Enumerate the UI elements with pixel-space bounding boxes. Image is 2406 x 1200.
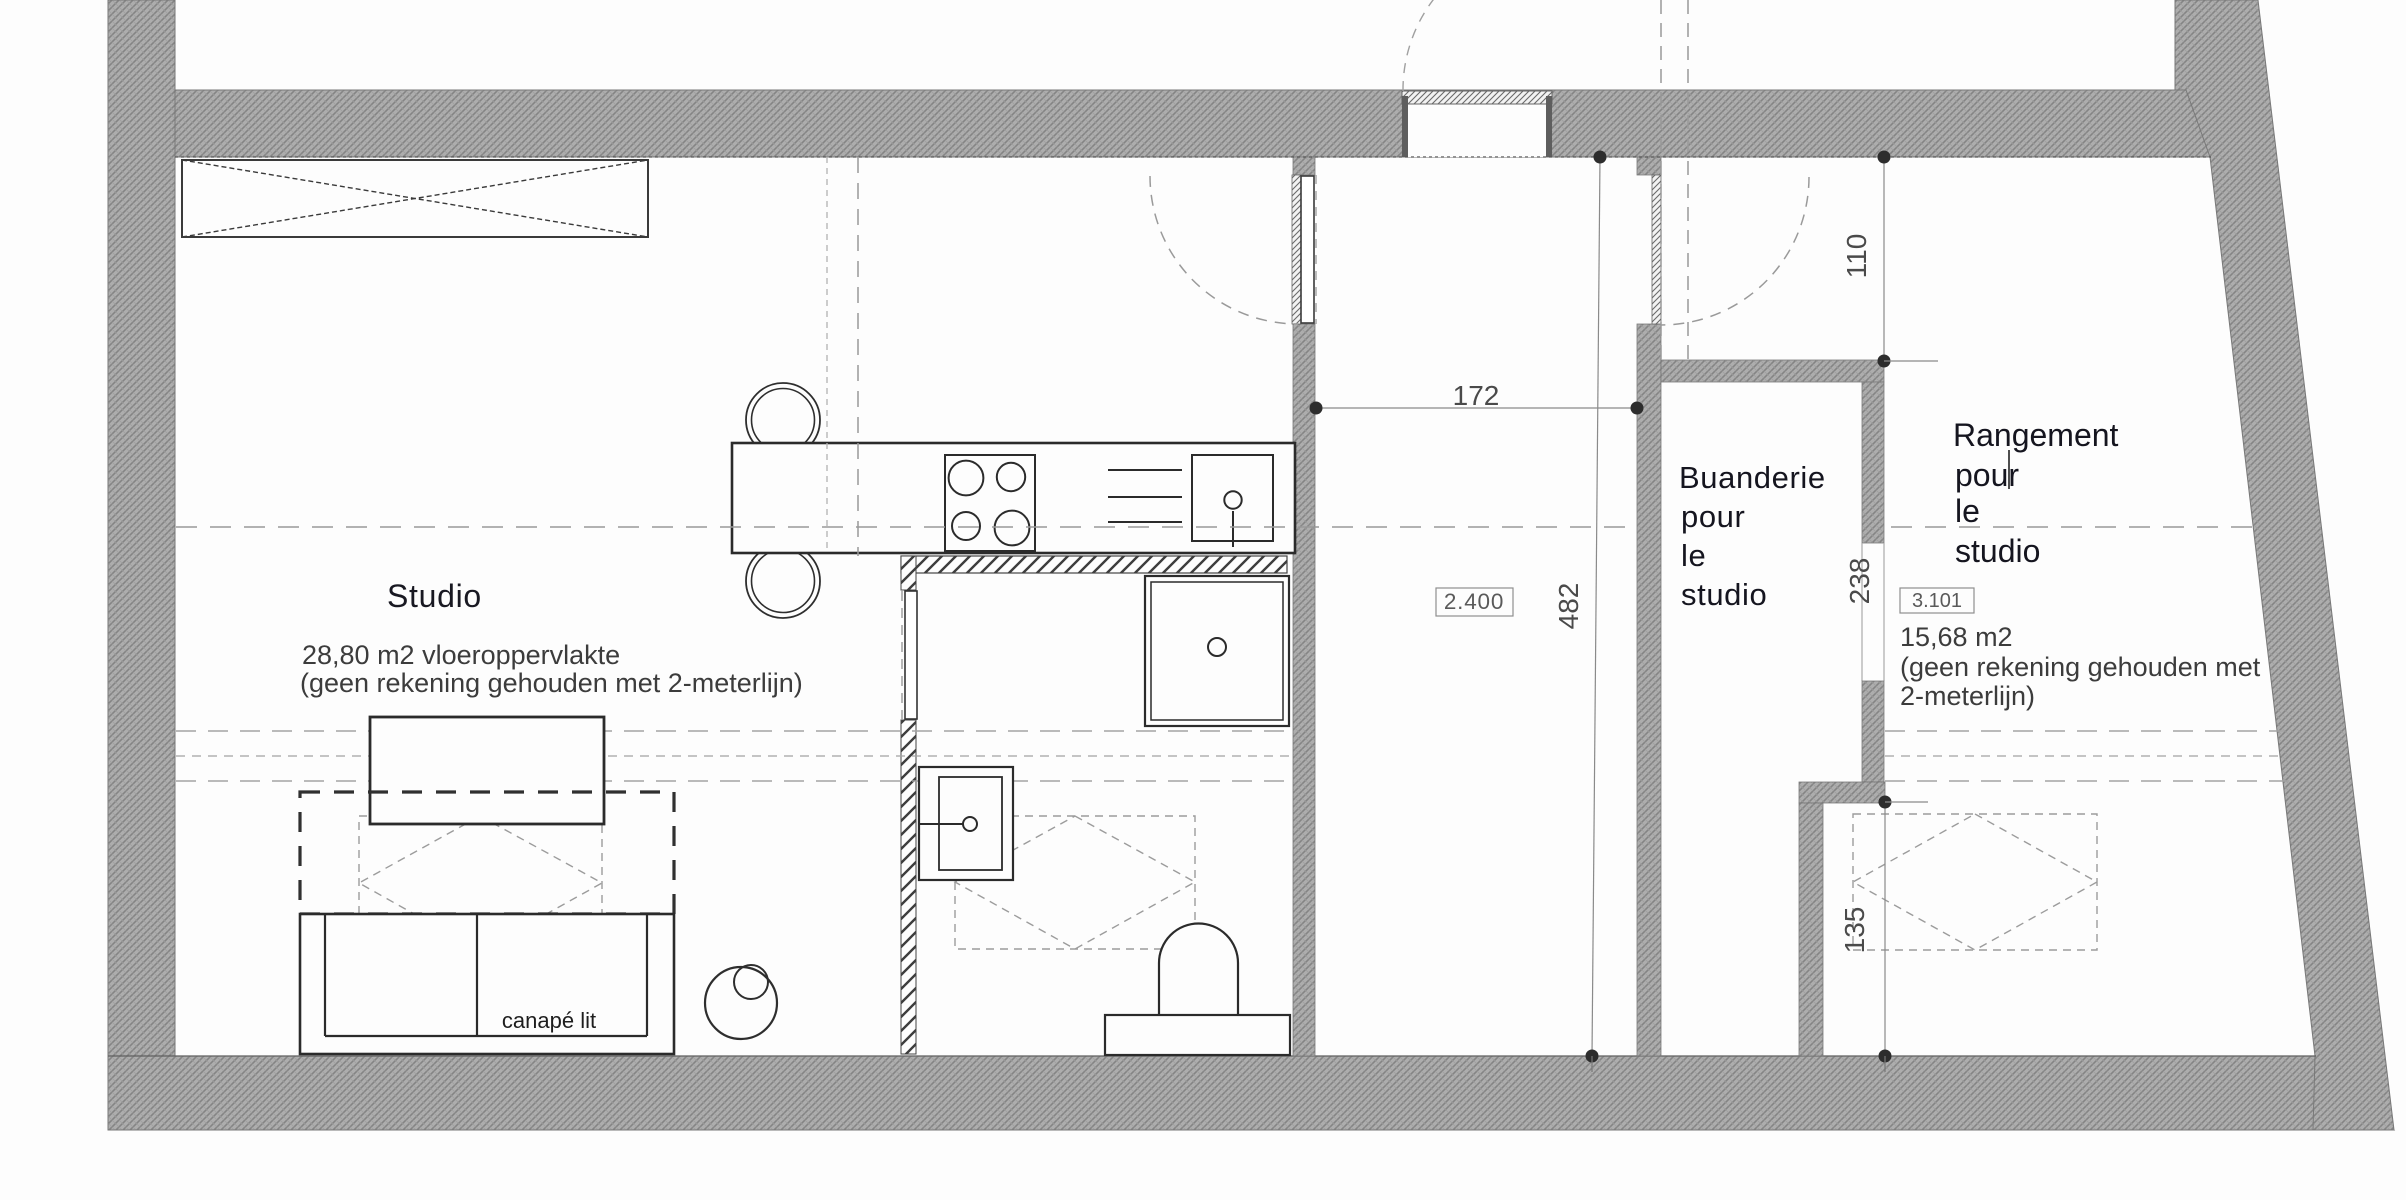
- svg-text:28,80 m2 vloeroppervlakte: 28,80 m2 vloeroppervlakte: [302, 640, 620, 670]
- svg-text:Rangement: Rangement: [1953, 417, 2119, 453]
- svg-text:Buanderie: Buanderie: [1679, 460, 1826, 495]
- svg-text:Studio: Studio: [387, 578, 482, 614]
- svg-text:482: 482: [1553, 583, 1584, 630]
- svg-text:135: 135: [1839, 907, 1870, 954]
- svg-text:2-meterlijn): 2-meterlijn): [1900, 681, 2035, 711]
- svg-text:studio: studio: [1681, 577, 1767, 612]
- svg-text:(geen rekening gehouden met 2-: (geen rekening gehouden met 2-meterlijn): [300, 668, 803, 698]
- svg-text:172: 172: [1453, 380, 1500, 411]
- svg-text:le: le: [1681, 538, 1706, 573]
- svg-text:15,68 m2: 15,68 m2: [1900, 622, 2013, 652]
- svg-text:pour: pour: [1681, 499, 1745, 534]
- svg-text:3.101: 3.101: [1912, 590, 1962, 612]
- svg-text:canapé lit: canapé lit: [502, 1008, 596, 1033]
- svg-text:studio: studio: [1955, 533, 2040, 569]
- svg-text:(geen rekening gehouden met: (geen rekening gehouden met: [1900, 652, 2261, 682]
- svg-text:le: le: [1955, 493, 1980, 529]
- svg-text:238: 238: [1844, 558, 1875, 605]
- svg-text:2.400: 2.400: [1444, 589, 1504, 614]
- svg-text:110: 110: [1841, 234, 1872, 279]
